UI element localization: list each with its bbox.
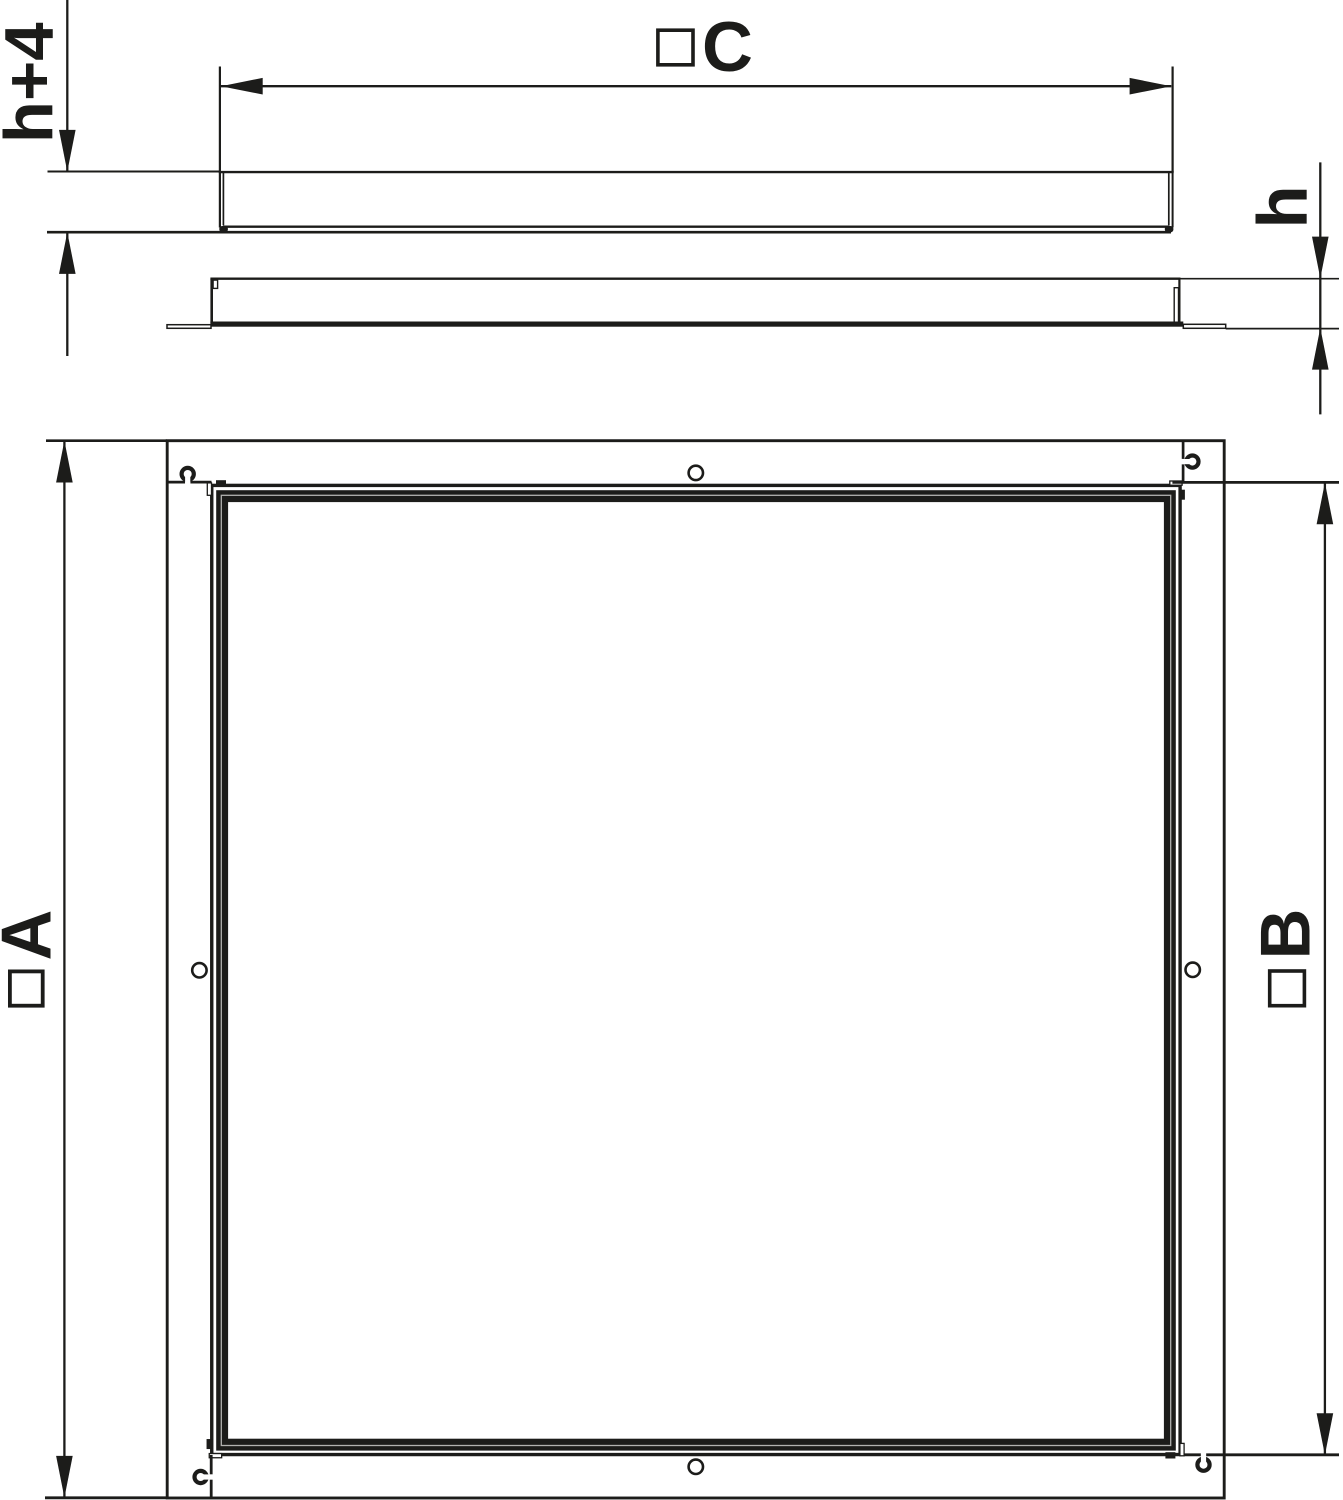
- svg-text:h: h: [1243, 185, 1322, 228]
- svg-text:h+4: h+4: [0, 22, 67, 143]
- svg-text:B: B: [1246, 909, 1325, 960]
- svg-text:C: C: [702, 7, 753, 86]
- svg-text:A: A: [0, 910, 66, 961]
